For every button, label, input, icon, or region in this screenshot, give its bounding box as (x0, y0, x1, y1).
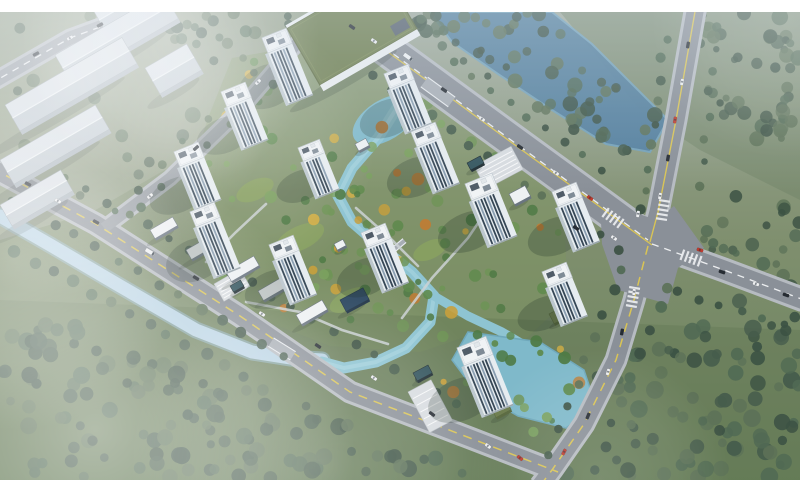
street-tree (645, 325, 655, 335)
street-tree (781, 321, 788, 328)
car (632, 289, 636, 296)
street-tree (609, 284, 620, 295)
site-tree (505, 355, 516, 366)
forest-tree (687, 353, 702, 368)
site-tree (480, 301, 489, 310)
frame-band-top (0, 0, 800, 12)
forest-tree (773, 260, 781, 268)
forest-tree (684, 323, 701, 340)
site-tree (557, 346, 564, 353)
forest-tree (727, 421, 742, 436)
forest-tree (675, 352, 686, 363)
street-tree (538, 191, 547, 200)
site-tree (392, 220, 403, 231)
site-tree (420, 219, 431, 230)
forest-tree (743, 409, 761, 427)
street-tree (614, 245, 624, 255)
forest-tree (779, 245, 788, 254)
forest-tree (731, 348, 744, 361)
fog-patch (115, 20, 375, 280)
forest-tree (703, 350, 720, 367)
forest-tree (664, 346, 673, 355)
forest-tree (774, 414, 790, 430)
site-tree (469, 269, 481, 281)
site-tree (319, 256, 326, 263)
site-tree (492, 340, 499, 347)
site-tree (431, 195, 443, 207)
forest-tree (719, 244, 729, 254)
site-tree (527, 205, 538, 216)
street-tree (738, 307, 746, 315)
forest-tree (776, 454, 792, 470)
street-tree (662, 283, 673, 294)
forest-tree (701, 225, 713, 237)
street-tree (673, 287, 682, 296)
site-tree (379, 204, 391, 216)
site-tree (423, 290, 432, 299)
site-tree (530, 335, 542, 347)
forest-tree (744, 320, 762, 338)
forest-tree (778, 436, 787, 445)
street-tree (655, 301, 667, 313)
site-tree (415, 279, 421, 285)
site-tree (496, 304, 505, 313)
forest-tree (752, 342, 762, 352)
site-tree (445, 306, 458, 319)
site-tree (489, 270, 497, 278)
street-tree (694, 295, 703, 304)
street-tree (597, 310, 607, 320)
forest-tree (717, 217, 729, 229)
forest-tree (718, 393, 733, 408)
masterplan-rendering (0, 0, 800, 485)
forest-tree (700, 331, 711, 342)
forest-tree (763, 221, 771, 229)
site-tree (506, 332, 514, 340)
forest-tree (778, 203, 791, 216)
forest-tree (728, 365, 744, 381)
frame-band-bottom (0, 480, 800, 485)
forest-tree (732, 294, 747, 309)
forest-tree (754, 432, 770, 448)
forest-tree (733, 399, 747, 413)
forest-tree (750, 351, 765, 366)
street-tree (715, 302, 723, 310)
forest-tree (790, 312, 800, 323)
site-tree (439, 286, 445, 292)
forest-tree (700, 235, 708, 243)
site-tree (309, 266, 318, 275)
car-windshield (633, 291, 635, 293)
site-tree (537, 350, 543, 356)
forest-tree (767, 321, 776, 330)
forest-tree (756, 257, 770, 271)
forest-tree (746, 238, 760, 252)
forest-tree (727, 441, 742, 456)
forest-tree (732, 250, 739, 257)
forest-tree (652, 342, 667, 357)
street-tree (590, 332, 600, 342)
forest-tree (748, 391, 763, 406)
aerial-rendering-stage (0, 0, 800, 485)
forest-tree (750, 375, 766, 391)
forest-tree (708, 238, 718, 248)
forest-tree (774, 382, 783, 391)
forest-tree (781, 357, 797, 373)
street-tree (758, 314, 766, 322)
street-tree (617, 266, 626, 275)
